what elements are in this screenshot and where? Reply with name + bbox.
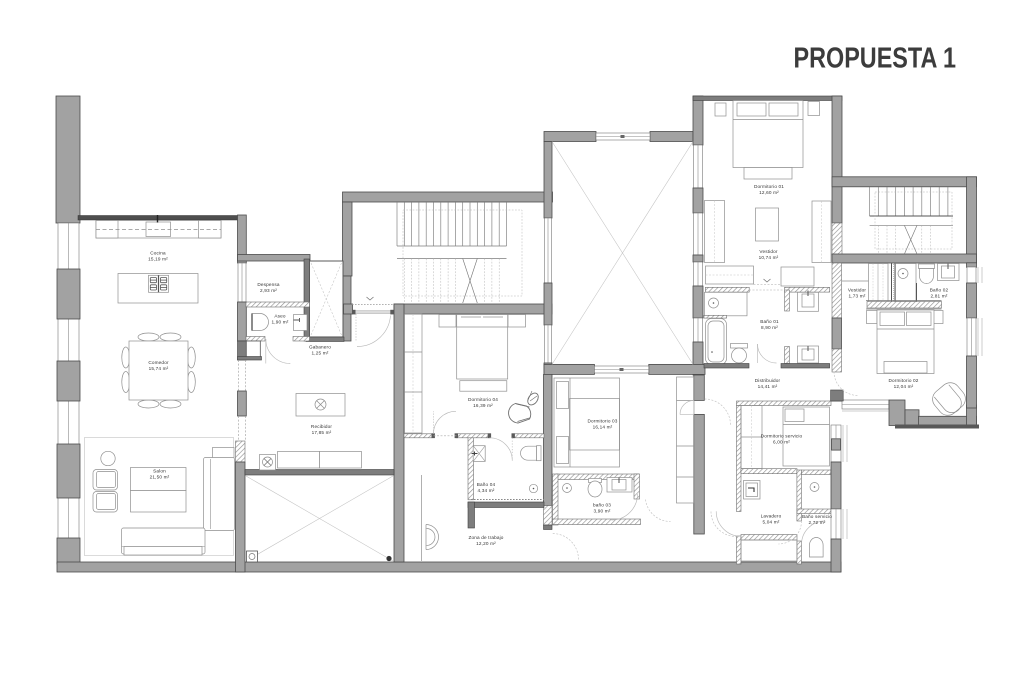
svg-text:21,50 m²: 21,50 m² bbox=[150, 475, 170, 480]
svg-text:Salon: Salon bbox=[153, 469, 166, 474]
svg-text:Vestidor: Vestidor bbox=[848, 288, 866, 293]
svg-text:Cocina: Cocina bbox=[150, 251, 166, 256]
svg-text:2,93 m²: 2,93 m² bbox=[260, 288, 277, 293]
svg-text:Dormitorio 01: Dormitorio 01 bbox=[754, 184, 784, 189]
svg-text:5,04 m²: 5,04 m² bbox=[763, 520, 780, 525]
svg-text:Baño 02: Baño 02 bbox=[930, 288, 949, 293]
svg-text:Dormitorio 03: Dormitorio 03 bbox=[587, 419, 617, 424]
svg-text:Baño 04: Baño 04 bbox=[477, 482, 496, 487]
svg-text:14,41 m²: 14,41 m² bbox=[758, 384, 778, 389]
svg-text:1,73 m²: 1,73 m² bbox=[849, 294, 866, 299]
svg-text:Dormitorio 02: Dormitorio 02 bbox=[888, 378, 918, 383]
svg-text:6,00 m²: 6,00 m² bbox=[773, 440, 790, 445]
svg-text:12,60 m²: 12,60 m² bbox=[759, 190, 779, 195]
svg-text:Baño 01: Baño 01 bbox=[760, 319, 779, 324]
svg-text:Comedor: Comedor bbox=[148, 360, 169, 365]
svg-text:16,14 m²: 16,14 m² bbox=[593, 425, 613, 430]
svg-text:1,25 m²: 1,25 m² bbox=[312, 351, 329, 356]
svg-text:PROPUESTA 1: PROPUESTA 1 bbox=[794, 43, 957, 75]
svg-text:3,90 m²: 3,90 m² bbox=[594, 509, 611, 514]
svg-text:Distribuidor: Distribuidor bbox=[755, 378, 781, 383]
svg-text:baño 03: baño 03 bbox=[593, 503, 611, 508]
svg-text:Vestidor: Vestidor bbox=[759, 249, 777, 254]
svg-text:16,39 m²: 16,39 m² bbox=[473, 403, 493, 408]
svg-text:Baño servicio: Baño servicio bbox=[802, 514, 832, 519]
svg-text:Dormitorio servicio: Dormitorio servicio bbox=[761, 434, 803, 439]
svg-text:2,72 m²: 2,72 m² bbox=[809, 520, 826, 525]
svg-text:4,34 m²: 4,34 m² bbox=[478, 488, 495, 493]
svg-text:15,74 m²: 15,74 m² bbox=[149, 366, 169, 371]
svg-text:12,20 m²: 12,20 m² bbox=[476, 541, 496, 546]
svg-text:Recibidor: Recibidor bbox=[311, 424, 332, 429]
svg-text:10,74 m²: 10,74 m² bbox=[759, 255, 779, 260]
svg-text:15,19 m²: 15,19 m² bbox=[148, 257, 168, 262]
svg-text:8,90 m²: 8,90 m² bbox=[761, 325, 778, 330]
svg-text:Dormitorio 04: Dormitorio 04 bbox=[468, 397, 498, 402]
svg-text:17,85 m²: 17,85 m² bbox=[312, 430, 332, 435]
svg-text:Despensa: Despensa bbox=[257, 282, 280, 287]
svg-text:Gabanero: Gabanero bbox=[309, 345, 331, 350]
svg-text:12,04 m²: 12,04 m² bbox=[894, 384, 914, 389]
svg-text:Zona de trabajo: Zona de trabajo bbox=[468, 535, 503, 540]
svg-text:Lavadero: Lavadero bbox=[761, 514, 782, 519]
svg-text:Aseo: Aseo bbox=[274, 314, 286, 319]
svg-text:1,90 m²: 1,90 m² bbox=[272, 320, 289, 325]
svg-text:2,81 m²: 2,81 m² bbox=[931, 294, 948, 299]
